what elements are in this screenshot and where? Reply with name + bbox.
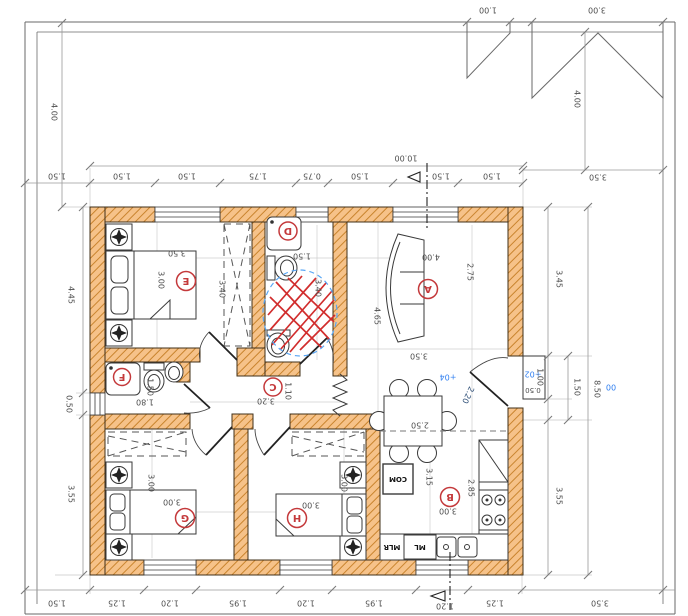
room-letter-d: D: [284, 225, 292, 236]
dim-bottom-right-offset: 3.50: [591, 599, 609, 608]
floor-plan-canvas: +02 0.50: [0, 0, 688, 616]
hall-level-label: +04: [440, 373, 457, 382]
stove-icon: [479, 490, 508, 530]
dim-bottom: 1.95: [229, 599, 247, 608]
dim-room-e: 3.50: [168, 249, 186, 258]
dim-bottom: 1.25: [486, 599, 504, 608]
dim-bottom: 1.20: [161, 599, 179, 608]
dim-room-g: 3.00: [147, 474, 156, 492]
window-living: [393, 207, 458, 222]
dim-room-a: 4.65: [373, 307, 382, 325]
section-triangle-icon: [408, 172, 420, 182]
dim-room-h: 3.00: [302, 501, 320, 510]
wardrobe-h-dashed: [292, 432, 364, 456]
toilet-d-icon: [267, 256, 297, 280]
dim-top: 1.50: [432, 172, 450, 181]
dim-right: 3.55: [555, 487, 564, 505]
bedroom-g-furniture: [106, 432, 196, 560]
dim-right: 3.45: [555, 270, 564, 288]
room-letter-e: E: [182, 275, 189, 286]
bed-h-icon: [276, 494, 366, 536]
window-e: [155, 207, 220, 222]
dim-top: 1.50: [351, 172, 369, 181]
dim-left-setback: 4.00: [50, 103, 59, 121]
step-depth-label: 0.50: [525, 386, 541, 394]
dim-room-b: 3.15: [425, 468, 434, 486]
dim-left: 4.45: [67, 286, 76, 304]
dim-room-f: 1.50: [146, 378, 155, 396]
lamp-icon: [345, 539, 362, 556]
fridge-icon: COM: [383, 464, 413, 494]
dim-top: 1.50: [113, 172, 131, 181]
large-canopy-outline: [532, 22, 663, 98]
bedroom-h-furniture: [276, 432, 366, 560]
dim-room-f: 1.80: [136, 398, 154, 407]
bathroom-d: [263, 217, 337, 357]
dim-room-d: 1.50: [293, 252, 311, 261]
dim-bottom: 1.25: [108, 599, 126, 608]
dim-room-a: 2.75: [466, 263, 475, 281]
shower-d-drain-icon: [270, 220, 274, 224]
dim-canopy-large: 3.00: [588, 6, 606, 15]
dim-room-a: 4.00: [422, 253, 440, 262]
markup-scribble: [263, 270, 337, 356]
bathroom-f: [106, 362, 183, 395]
window-kitchen: [416, 560, 468, 575]
dishwasher-label: ML: [414, 543, 426, 551]
dim-right-setback: 4.00: [573, 90, 582, 108]
dim-bottom: 1.95: [365, 599, 383, 608]
floor-plan-drawing: +02 0.50: [0, 0, 688, 616]
door-h: [255, 427, 290, 455]
dim-room-c: 3.20: [257, 397, 275, 406]
dim-right-total: 8.50: [593, 380, 602, 398]
window-left: [90, 393, 105, 415]
dim-room-c: 1.10: [284, 382, 293, 400]
door-entrance: [470, 358, 508, 406]
dim-room-d: 3.40: [314, 279, 323, 297]
room-letter-a: A: [424, 283, 432, 294]
window-g: [144, 560, 196, 575]
dim-room-b: 2.85: [467, 479, 476, 497]
dim-top: 1.50: [178, 172, 196, 181]
washer-label: MLR: [383, 543, 400, 551]
dim-entry-door: 2.20: [460, 385, 476, 405]
room-letter-c: C: [269, 381, 276, 392]
site-level-label: 00: [606, 383, 616, 392]
door-g: [192, 427, 232, 455]
lamp-icon: [111, 467, 128, 484]
dim-room-b: 3.00: [439, 507, 457, 516]
wardrobe-g-dashed: [108, 432, 186, 456]
door-e: [199, 332, 237, 360]
lamp-icon: [111, 229, 128, 246]
room-letter-h: H: [293, 512, 301, 523]
dim-bottom: 1.20: [436, 602, 454, 611]
dim-left: 3.55: [67, 485, 76, 503]
dim-room-e: 3.00: [157, 271, 166, 289]
door-f: [184, 384, 210, 413]
bed-e-icon: [106, 251, 196, 319]
fridge-label: COM: [389, 475, 407, 483]
dim-top: 1.50: [483, 172, 501, 181]
entrance-canopy-outlines: [467, 22, 663, 98]
dim-canopy-small: 1.00: [479, 6, 497, 15]
sink-f-icon: [165, 362, 183, 382]
dim-room-a: 3.50: [410, 352, 428, 361]
window-h: [280, 560, 332, 575]
dim-right: 1.00: [536, 368, 545, 386]
room-letter-f: F: [119, 371, 126, 382]
dim-bottom: 1.20: [297, 599, 315, 608]
dim-top-total: 10.00: [395, 154, 418, 163]
dim-bottom: 1.50: [48, 599, 66, 608]
dim-top-offset: 1.50: [48, 172, 66, 181]
dim-left: 0.50: [65, 395, 74, 413]
section-triangle-icon: [431, 591, 445, 601]
dim-top-right-offset: 3.50: [589, 173, 607, 182]
dim-room-g: 3.00: [163, 498, 181, 507]
small-canopy-outline: [467, 22, 510, 78]
opening-zigzag-symbol: [333, 374, 347, 416]
wardrobe-e-dashed: [224, 224, 250, 346]
dim-room-h: 3.00: [340, 474, 349, 492]
dim-top: 0.75: [303, 172, 321, 181]
lamp-icon: [111, 325, 128, 342]
shower-f-drain-icon: [109, 366, 113, 370]
dim-dining-width: 2.50: [411, 421, 429, 430]
dim-room-e: 3.40: [218, 280, 227, 298]
dim-right-entry: 1.50: [573, 378, 582, 396]
dim-top: 1.75: [249, 172, 267, 181]
room-letter-b: B: [446, 491, 454, 502]
lamp-icon: [111, 539, 128, 556]
room-letter-g: G: [181, 512, 189, 523]
